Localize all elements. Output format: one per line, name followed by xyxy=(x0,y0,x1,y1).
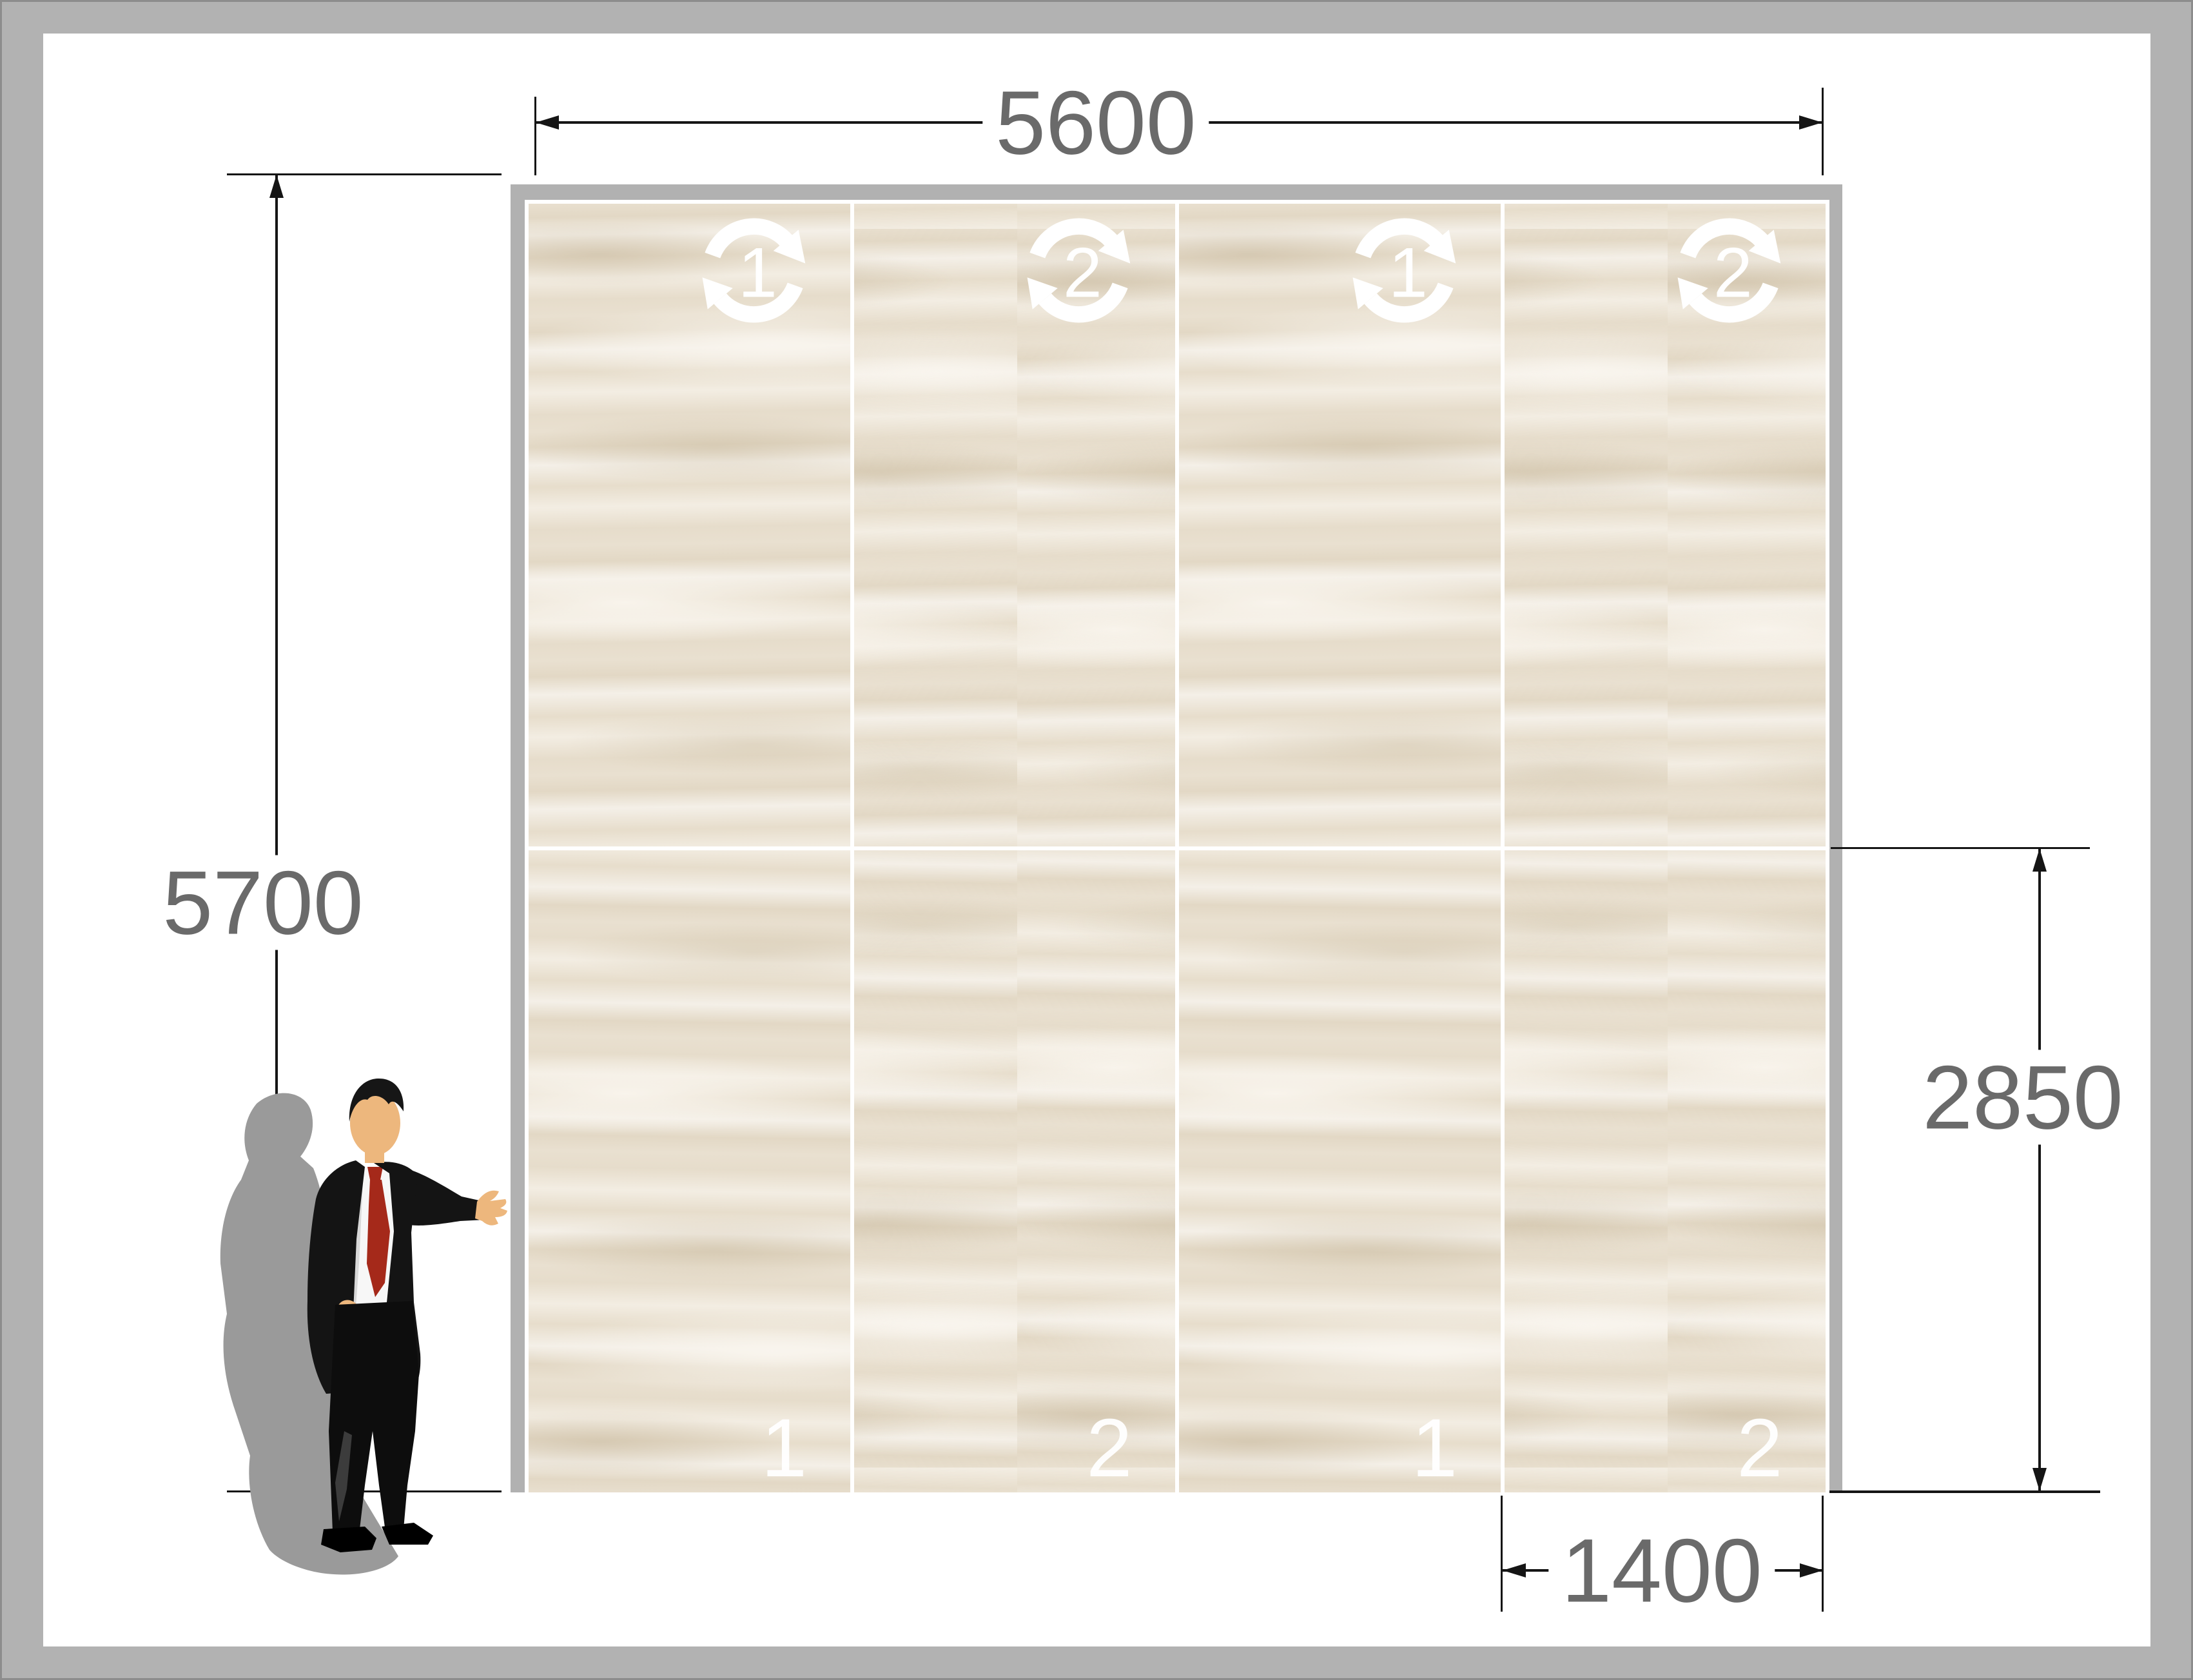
dim-half-ext-bottom xyxy=(1829,1490,2100,1493)
dim-half-label: 2850 xyxy=(1909,1050,2136,1145)
dim-panel-arrow-right xyxy=(1800,1563,1823,1577)
dim-panel-ext-right xyxy=(1822,1496,1824,1612)
panel-number: 1 xyxy=(1412,1407,1457,1490)
tile-panel-3-bottom: 1 xyxy=(1179,850,1501,1493)
svg-text:1: 1 xyxy=(1389,233,1428,312)
tile-panel-2-top: 2 xyxy=(854,204,1176,846)
tile-texture xyxy=(1179,850,1501,1493)
dim-height-arrow-top xyxy=(269,175,284,198)
dim-half-ext-top xyxy=(1831,847,2090,849)
dim-panel-ext-left xyxy=(1501,1496,1503,1612)
rotation-icon: 1 xyxy=(691,208,817,333)
rotation-icon: 2 xyxy=(1016,208,1142,333)
rotation-icon: 1 xyxy=(1341,208,1467,333)
person-illustration xyxy=(206,1070,509,1586)
tile-grid: 1 2 1 2 1212 xyxy=(525,200,1829,1492)
tile-panel-1-bottom: 1 xyxy=(529,850,850,1493)
dim-width-arrow-right xyxy=(1799,115,1822,130)
svg-text:2: 2 xyxy=(1713,233,1753,312)
tile-panel-4-top: 2 xyxy=(1505,204,1826,846)
tile-panel-3-top: 1 xyxy=(1179,204,1501,846)
dim-panel-arrow-left xyxy=(1503,1563,1526,1577)
panel-number: 1 xyxy=(761,1407,807,1490)
tile-panel-2-bottom: 2 xyxy=(854,850,1176,1493)
dim-half-arrow-bottom xyxy=(2032,1468,2047,1491)
dim-width-ext-right xyxy=(1822,88,1824,175)
dim-width-label: 5600 xyxy=(982,75,1209,170)
dim-height-ext-top xyxy=(227,173,502,175)
svg-text:1: 1 xyxy=(738,233,777,312)
dim-height-label: 5700 xyxy=(150,855,376,950)
dim-half-line xyxy=(2038,848,2041,1491)
dim-half-arrow-top xyxy=(2032,848,2047,872)
panel-number: 2 xyxy=(1086,1407,1132,1490)
panel-number: 2 xyxy=(1737,1407,1782,1490)
tile-panel-1-top: 1 xyxy=(529,204,850,846)
tile-texture xyxy=(529,850,850,1493)
svg-text:2: 2 xyxy=(1063,233,1102,312)
dim-width-ext-left xyxy=(534,97,536,175)
dim-width-arrow-left xyxy=(536,115,559,130)
tile-texture xyxy=(1505,850,1826,1493)
rotation-icon: 2 xyxy=(1666,208,1792,333)
tile-texture xyxy=(854,850,1176,1493)
tile-panel-4-bottom: 2 xyxy=(1505,850,1826,1493)
dim-panel-label: 1400 xyxy=(1548,1523,1775,1618)
